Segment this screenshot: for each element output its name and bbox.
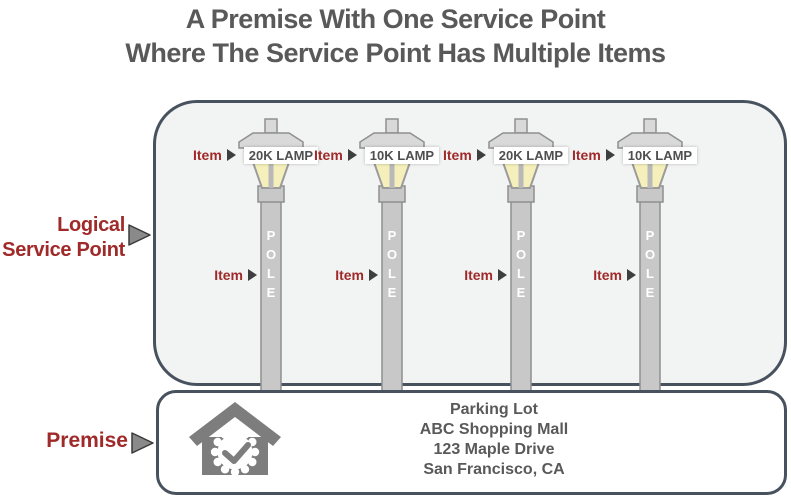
premise-label: Premise <box>0 429 128 453</box>
pole-label: P O L E <box>486 226 556 302</box>
arrow-right-icon <box>127 224 151 246</box>
address-line: Parking Lot <box>378 400 610 420</box>
item-callout-lamp-4: Item 10K LAMP <box>572 146 697 164</box>
item-callout-pole-2: Item <box>302 266 378 284</box>
premise-house-icon <box>188 401 282 477</box>
item-label: Item <box>593 267 622 283</box>
lamp-wattage-label: 10K LAMP <box>365 147 439 164</box>
page-title: A Premise With One Service Point Where T… <box>0 2 791 70</box>
arrow-right-icon <box>627 269 636 281</box>
logical-service-point-line-1: Logical <box>0 213 125 238</box>
lamp-wattage-label: 10K LAMP <box>623 147 697 164</box>
logical-service-point-line-2: Service Point <box>0 238 125 263</box>
lamp-wattage-label: 20K LAMP <box>244 147 318 164</box>
item-callout-pole-3: Item <box>431 266 507 284</box>
item-callout-lamp-1: Item 20K LAMP <box>193 146 318 164</box>
diagram-canvas: A Premise With One Service Point Where T… <box>0 0 791 501</box>
item-label: Item <box>572 147 601 163</box>
arrow-right-icon <box>606 149 615 161</box>
arrow-right-icon <box>130 432 154 454</box>
arrow-right-icon <box>248 269 257 281</box>
pole-label: P O L E <box>615 226 685 302</box>
item-label: Item <box>193 147 222 163</box>
item-label: Item <box>214 267 243 283</box>
pole-label: P O L E <box>357 226 427 302</box>
arrow-right-icon <box>348 149 357 161</box>
title-line-2: Where The Service Point Has Multiple Ite… <box>0 36 791 70</box>
item-callout-lamp-3: Item 20K LAMP <box>443 146 568 164</box>
logical-service-point-label: Logical Service Point <box>0 213 125 263</box>
item-label: Item <box>335 267 364 283</box>
premise-address: Parking Lot ABC Shopping Mall 123 Maple … <box>378 400 610 480</box>
arrow-right-icon <box>369 269 378 281</box>
arrow-right-icon <box>227 149 236 161</box>
pole-label: P O L E <box>236 226 306 302</box>
item-callout-lamp-2: Item 10K LAMP <box>314 146 439 164</box>
item-label: Item <box>314 147 343 163</box>
item-callout-pole-4: Item <box>560 266 636 284</box>
arrow-right-icon <box>477 149 486 161</box>
lamp-wattage-label: 20K LAMP <box>494 147 568 164</box>
item-callout-pole-1: Item <box>181 266 257 284</box>
item-label: Item <box>464 267 493 283</box>
address-line: San Francisco, CA <box>378 460 610 480</box>
item-label: Item <box>443 147 472 163</box>
arrow-right-icon <box>498 269 507 281</box>
title-line-1: A Premise With One Service Point <box>0 2 791 36</box>
address-line: ABC Shopping Mall <box>378 420 610 440</box>
address-line: 123 Maple Drive <box>378 440 610 460</box>
